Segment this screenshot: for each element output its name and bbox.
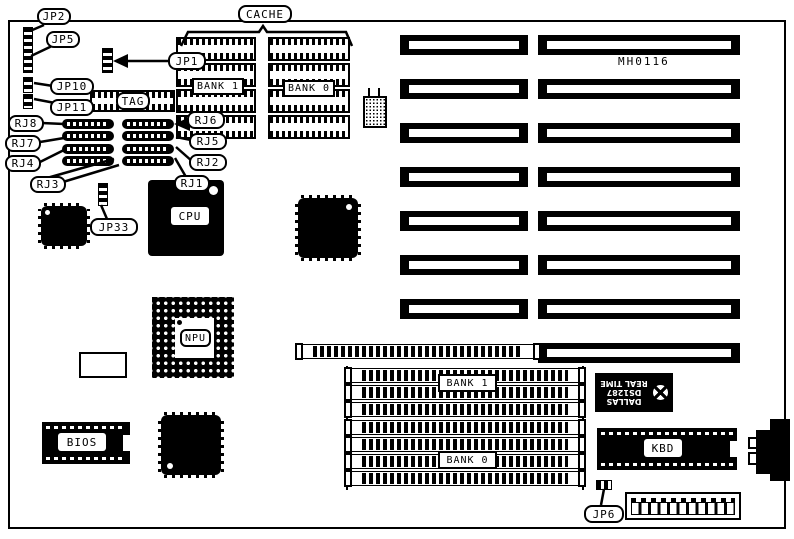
simm-slot-4-left-cap [344,401,352,418]
jp11-jumper-block [23,94,33,109]
simm-slot-2-right-cap [578,367,586,384]
rj3-label: RJ3 [30,176,66,193]
qfp-chip-right-of-cpu-pin1-dot [346,204,352,210]
rtc-brand: DALLAS [600,397,648,406]
isa-slot-right-5 [538,211,740,231]
empty-socket [79,352,127,378]
npu-label: NPU [180,329,211,347]
simm-slot-1-right-cap [533,343,541,360]
rj5-label: RJ5 [189,133,227,150]
rj-strip-row1-col2 [122,119,174,129]
simm-slot-6 [349,437,581,452]
qfp-chip-left [38,203,90,249]
qfp-chip-right-of-cpu [295,195,361,261]
simm-slot-1 [300,344,536,359]
crystal-oscillator [363,96,387,128]
rj-strip-row2-col2 [122,131,174,141]
isa-slot-right-6 [538,255,740,275]
simm-slot-3-right-cap [578,384,586,401]
qfp-chip-left-pin1-dot [45,210,50,215]
rj4-label: RJ4 [5,155,41,172]
jp10-jumper-block [23,77,33,93]
simm-bank1-label: BANK 1 [438,374,497,392]
rtc-function: REAL TIME [600,379,648,388]
npu-pin1-dot [177,320,182,325]
simm-slot-4 [349,402,581,417]
keyboard-din-connector [770,419,790,481]
jp6-jumper-block [596,480,612,490]
simm-slot-5 [349,420,581,435]
rj-strip-row3-col2 [122,144,174,154]
cache-bank0-label: BANK 0 [283,80,335,97]
isa-slot-right-4 [538,167,740,187]
keyboard-din-pin-lower [748,452,758,465]
rj8-label: RJ8 [8,115,44,132]
jp10-label: JP10 [50,78,94,95]
qfp-chip-bottom [158,412,224,478]
bios-chip-notch [123,435,130,451]
tag-label: TAG [116,92,150,110]
simm-slot-3-left-cap [344,384,352,401]
power-connector [625,492,741,520]
isa-slot-right-8 [538,343,740,363]
isa-slot-right-2 [538,79,740,99]
cache-bank0-chip-1 [268,37,350,61]
isa-slot-left-5 [400,211,528,231]
simm-slot-7-right-cap [578,453,586,470]
jp2-jp5-jumper-block [23,27,33,73]
qfp-chip-bottom-pin1-dot [167,463,173,469]
dallas-logo-icon [653,385,668,400]
isa-slot-left-7 [400,299,528,319]
keyboard-din-pin-upper [748,437,758,449]
rj-strip-row4-col2 [122,156,174,166]
rj1-label: RJ1 [174,175,210,192]
cpu-pin1-dot [209,186,218,195]
isa-slot-left-6 [400,255,528,275]
bios-label: BIOS [58,433,106,451]
isa-slot-right-1 [538,35,740,55]
isa-slot-left-2 [400,79,528,99]
simm-bank0-label: BANK 0 [438,451,497,469]
motherboard-diagram: CACHE JP2 JP5 JP1 JP10 JP11 TAG RJ8 RJ7 … [0,0,794,539]
simm-slot-5-right-cap [578,419,586,436]
jp33-jumper-block [98,183,108,206]
rj2-label: RJ2 [189,154,227,171]
kbd-label: KBD [644,439,682,457]
simm-slot-6-right-cap [578,436,586,453]
simm-slot-8 [349,471,581,486]
simm-slot-6-left-cap [344,436,352,453]
rtc-part-number: DS1287 [600,388,648,397]
simm-slot-7-left-cap [344,453,352,470]
jp11-label: JP11 [50,99,94,116]
rj-strip-row3-col1 [62,144,114,154]
cpu-label: CPU [171,207,209,225]
jp5-label: JP5 [46,31,80,48]
rj-strip-row4-col1 [62,156,114,166]
isa-slot-left-3 [400,123,528,143]
cache-bank0-chip-4 [268,115,350,139]
jp1-label: JP1 [168,52,206,70]
board-id-text: MH0116 [618,55,698,69]
simm-slot-8-right-cap [578,470,586,487]
simm-slot-8-left-cap [344,470,352,487]
keyboard-din-connector-bulge [756,430,772,474]
simm-slot-1-left-cap [295,343,303,360]
isa-slot-left-4 [400,167,528,187]
rtc-chip-print: DALLAS DS1287 REAL TIME [597,375,671,410]
crystal-lead-left [368,88,370,97]
rj7-label: RJ7 [5,135,41,152]
rtc-chip: DALLAS DS1287 REAL TIME [595,373,673,412]
jp6-label: JP6 [584,505,624,523]
isa-slot-right-7 [538,299,740,319]
jp33-label: JP33 [90,218,138,236]
kbd-chip-notch [730,441,737,457]
cache-label: CACHE [238,5,292,23]
simm-slot-2-left-cap [344,367,352,384]
power-connector-pins [631,502,735,515]
jp2-label: JP2 [37,8,71,25]
isa-slot-left-1 [400,35,528,55]
crystal-lead-right [378,88,380,97]
jp1-jumper-block [102,48,113,73]
simm-slot-5-left-cap [344,419,352,436]
rj-strip-row1-col1 [62,119,114,129]
simm-slot-4-right-cap [578,401,586,418]
cache-bank1-label: BANK 1 [192,78,244,95]
rj-strip-row2-col1 [62,131,114,141]
isa-slot-right-3 [538,123,740,143]
rj6-label: RJ6 [187,111,225,129]
